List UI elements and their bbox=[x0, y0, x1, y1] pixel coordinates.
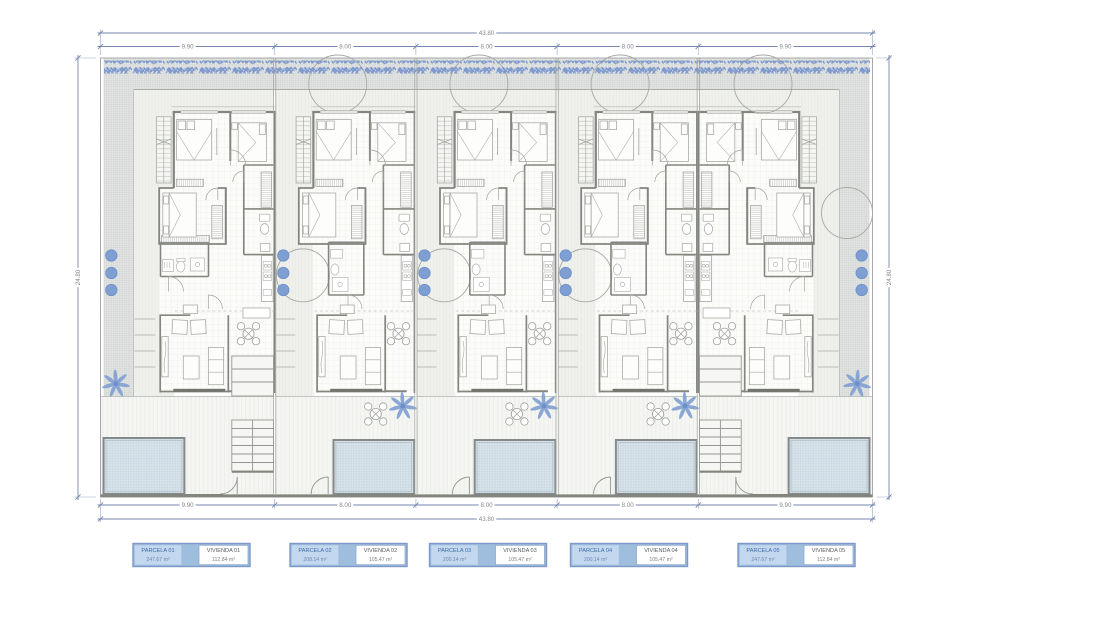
svg-text:PARCELA 04: PARCELA 04 bbox=[579, 548, 612, 554]
svg-text:VIVIENDA 02: VIVIENDA 02 bbox=[364, 548, 398, 554]
svg-text:247.67 m²: 247.67 m² bbox=[751, 557, 775, 563]
svg-text:8.00: 8.00 bbox=[622, 44, 635, 51]
svg-text:247.67 m²: 247.67 m² bbox=[146, 557, 170, 563]
svg-text:8.00: 8.00 bbox=[480, 44, 493, 51]
svg-text:8.00: 8.00 bbox=[480, 502, 493, 509]
svg-text:VIVIENDA 01: VIVIENDA 01 bbox=[207, 548, 241, 554]
svg-text:112.84 m²: 112.84 m² bbox=[817, 557, 840, 563]
svg-text:VIVIENDA 04: VIVIENDA 04 bbox=[644, 548, 678, 554]
svg-text:9.90: 9.90 bbox=[182, 44, 195, 51]
svg-text:24.80: 24.80 bbox=[886, 269, 893, 285]
svg-text:8.00: 8.00 bbox=[339, 502, 352, 509]
svg-text:43.80: 43.80 bbox=[479, 30, 495, 37]
svg-text:9.90: 9.90 bbox=[779, 502, 792, 509]
svg-text:8.00: 8.00 bbox=[622, 502, 635, 509]
svg-text:VIVIENDA 03: VIVIENDA 03 bbox=[503, 548, 537, 554]
svg-text:PARCELA 02: PARCELA 02 bbox=[298, 548, 331, 554]
svg-text:PARCELA 01: PARCELA 01 bbox=[141, 548, 174, 554]
svg-text:43.80: 43.80 bbox=[479, 516, 495, 523]
svg-text:200.14 m²: 200.14 m² bbox=[584, 557, 608, 563]
svg-text:200.14 m²: 200.14 m² bbox=[443, 557, 467, 563]
svg-text:208.14 m²: 208.14 m² bbox=[303, 557, 327, 563]
svg-text:9.90: 9.90 bbox=[779, 44, 792, 51]
svg-text:PARCELA 03: PARCELA 03 bbox=[438, 548, 471, 554]
svg-text:PARCELA 05: PARCELA 05 bbox=[746, 548, 779, 554]
svg-text:112.84 m²: 112.84 m² bbox=[212, 557, 235, 563]
svg-text:24.80: 24.80 bbox=[75, 269, 82, 285]
svg-text:105.47 m²: 105.47 m² bbox=[649, 557, 673, 563]
svg-text:8.00: 8.00 bbox=[339, 44, 352, 51]
svg-text:105.47 m²: 105.47 m² bbox=[369, 557, 393, 563]
svg-text:9.90: 9.90 bbox=[182, 502, 195, 509]
svg-text:105.47 m²: 105.47 m² bbox=[508, 557, 532, 563]
svg-text:VIVIENDA 05: VIVIENDA 05 bbox=[812, 548, 846, 554]
